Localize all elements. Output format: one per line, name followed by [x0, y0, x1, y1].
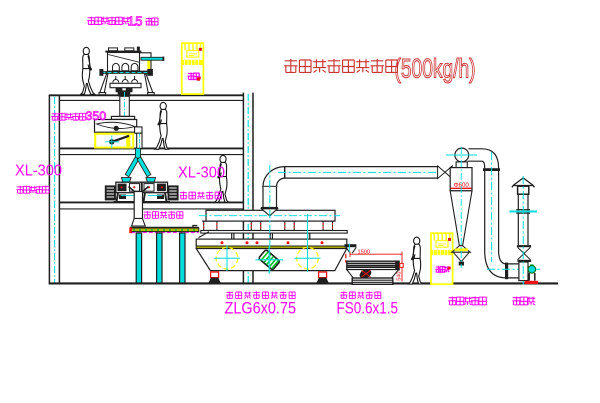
svg-text:ZLG6x0.75: ZLG6x0.75 — [225, 300, 297, 318]
svg-text:1.5: 1.5 — [128, 13, 143, 28]
svg-text:FS0.6x1.5: FS0.6x1.5 — [337, 300, 399, 318]
svg-text:XL-300: XL-300 — [178, 165, 225, 182]
svg-text:(500kg/h): (500kg/h) — [395, 54, 476, 84]
svg-text:XL-300: XL-300 — [15, 163, 62, 180]
svg-text:1500: 1500 — [358, 249, 370, 255]
svg-text:540: 540 — [396, 271, 402, 280]
svg-text:350: 350 — [86, 109, 107, 123]
